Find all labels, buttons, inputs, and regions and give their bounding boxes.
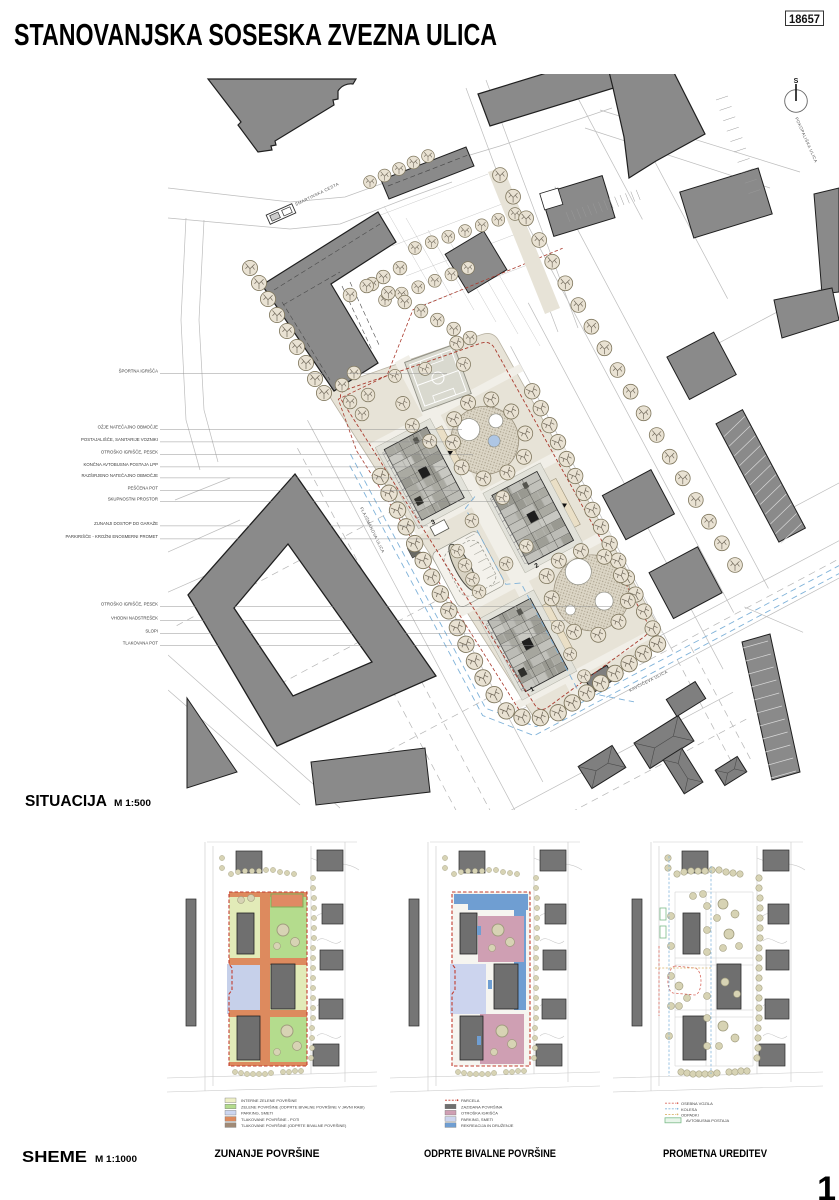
svg-text:SLOPI: SLOPI	[145, 628, 158, 633]
svg-text:ZELENE POVRŠINE (ODPRTE BIVALN: ZELENE POVRŠINE (ODPRTE BIVALNE POVRŠINE…	[241, 1104, 365, 1109]
svg-text:18657: 18657	[789, 12, 820, 26]
svg-text:ODPRTE BIVALNE POVRŠINE: ODPRTE BIVALNE POVRŠINE	[424, 1147, 556, 1160]
svg-text:POSTAJALIŠČE, SANITARIJE VOZNI: POSTAJALIŠČE, SANITARIJE VOZNIKI	[81, 437, 158, 442]
svg-text:PARKING, SMETI: PARKING, SMETI	[461, 1117, 493, 1122]
svg-text:RAZŠIRJENO NATEČAJNO OBMOČJE: RAZŠIRJENO NATEČAJNO OBMOČJE	[81, 473, 158, 478]
svg-text:INTERNE ZELENE POVRŠINE: INTERNE ZELENE POVRŠINE	[241, 1098, 297, 1103]
svg-text:AVTOBUSNA POSTAJA: AVTOBUSNA POSTAJA	[686, 1118, 729, 1123]
svg-text:PARKING, SMETI: PARKING, SMETI	[241, 1111, 273, 1116]
svg-text:1: 1	[817, 1170, 836, 1200]
svg-text:OTROŠKO IGRIŠČE, PESEK: OTROŠKO IGRIŠČE, PESEK	[101, 449, 158, 454]
svg-text:KOLESA: KOLESA	[681, 1107, 697, 1112]
svg-text:ODPADKI: ODPADKI	[681, 1112, 699, 1117]
svg-text:PARKIRIŠČE - KROŽNI ENOSMERNI: PARKIRIŠČE - KROŽNI ENOSMERNI PROMET	[65, 534, 158, 539]
svg-text:STANOVANJSKA SOSESKA ZVEZNA UL: STANOVANJSKA SOSESKA ZVEZNA ULICA	[14, 17, 497, 52]
svg-text:PARCELA: PARCELA	[461, 1098, 480, 1103]
svg-text:TLAKOVANE POVRŠINE (ODPRTE BIV: TLAKOVANE POVRŠINE (ODPRTE BIVALNE POVRŠ…	[241, 1123, 347, 1128]
svg-text:REKREACIJA IN DRUŽENJE: REKREACIJA IN DRUŽENJE	[461, 1123, 514, 1128]
svg-text:M 1:500: M 1:500	[114, 798, 151, 809]
svg-text:TLAKOVANE POVRŠINE - POTI: TLAKOVANE POVRŠINE - POTI	[241, 1117, 299, 1122]
svg-text:SITUACIJA: SITUACIJA	[25, 793, 107, 810]
svg-text:ZAZIDANA POVRŠINA: ZAZIDANA POVRŠINA	[461, 1104, 503, 1109]
svg-text:S: S	[794, 78, 799, 85]
svg-text:OTROŠKA IGRIŠČA: OTROŠKA IGRIŠČA	[461, 1111, 498, 1116]
svg-text:ŠPORTNA IGRIŠČA: ŠPORTNA IGRIŠČA	[119, 368, 158, 373]
svg-text:OSEBNA VOZILA: OSEBNA VOZILA	[681, 1101, 713, 1106]
svg-text:ZUNANJE POVRŠINE: ZUNANJE POVRŠINE	[215, 1147, 320, 1160]
svg-text:KONČNA AVTOBUSNA POSTAJA LPP: KONČNA AVTOBUSNA POSTAJA LPP	[83, 462, 158, 467]
svg-text:ZUNANJI DOSTOP DO GARAŽE: ZUNANJI DOSTOP DO GARAŽE	[94, 521, 158, 526]
svg-text:OŽJE NATEČAJNO OBMOČJE: OŽJE NATEČAJNO OBMOČJE	[98, 424, 158, 429]
svg-text:SHEME: SHEME	[22, 1149, 87, 1166]
svg-text:OTROŠKO IGRIŠČE, PESEK: OTROŠKO IGRIŠČE, PESEK	[101, 601, 158, 606]
svg-text:M 1:1000: M 1:1000	[95, 1154, 137, 1165]
svg-text:SKUPNOSTNI PROSTOR: SKUPNOSTNI PROSTOR	[108, 496, 158, 501]
svg-text:PEŠČENA POT: PEŠČENA POT	[128, 485, 159, 490]
svg-text:TLAKOVANA POT: TLAKOVANA POT	[123, 640, 159, 645]
svg-text:PROMETNA UREDITEV: PROMETNA UREDITEV	[663, 1148, 768, 1160]
svg-text:VHODNI NADSTREŠEK: VHODNI NADSTREŠEK	[111, 615, 158, 620]
